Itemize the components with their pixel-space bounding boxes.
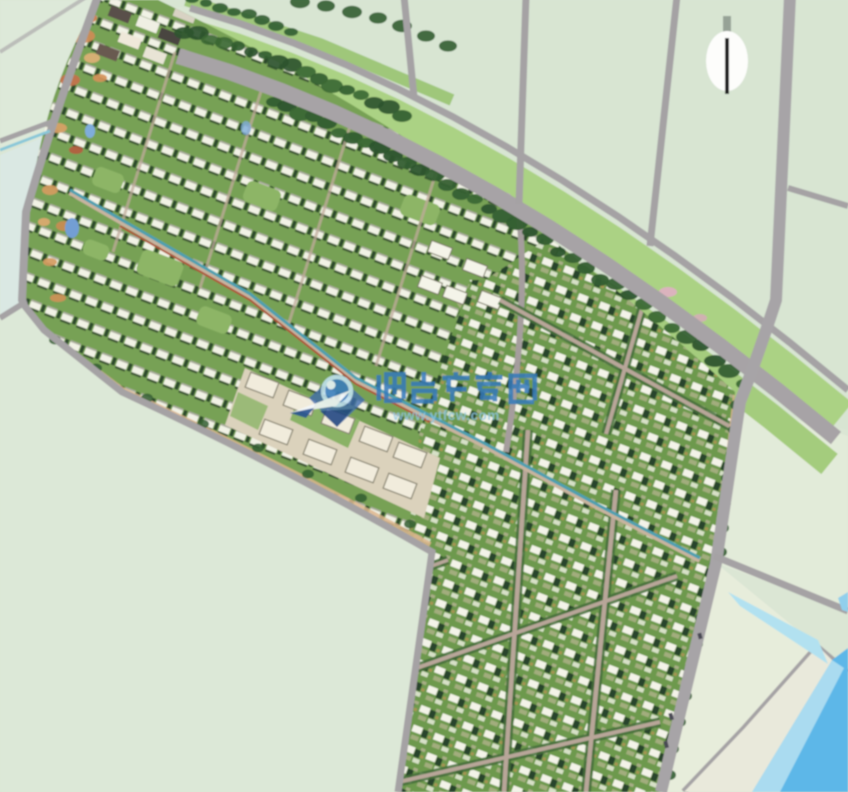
svg-text:www.ytfcw.com: www.ytfcw.com xyxy=(392,408,500,423)
